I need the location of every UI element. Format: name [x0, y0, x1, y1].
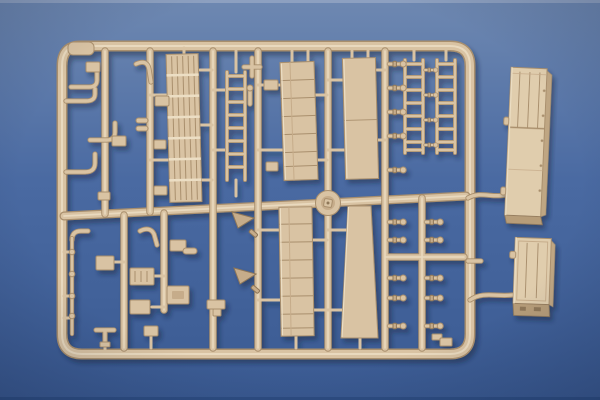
sprue-photo-canvas: [0, 0, 600, 400]
sprue-photo: [0, 0, 600, 400]
photo-vignette: [0, 0, 600, 400]
